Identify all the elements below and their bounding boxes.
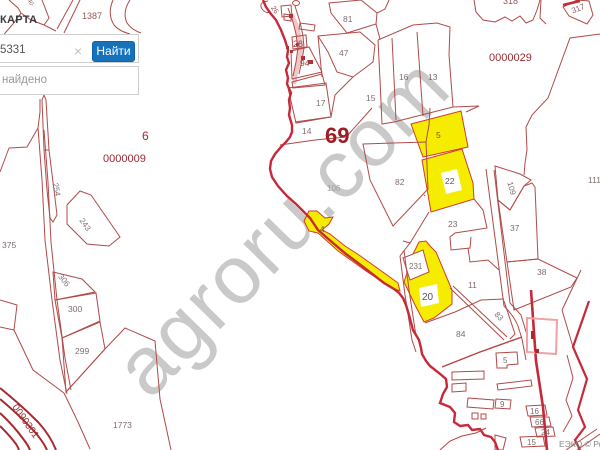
svg-text:0090301: 0090301 — [9, 402, 41, 441]
svg-text:231: 231 — [409, 262, 423, 271]
svg-text:24: 24 — [541, 428, 550, 437]
svg-text:375: 375 — [2, 240, 16, 250]
svg-text:106: 106 — [327, 184, 341, 193]
svg-text:11: 11 — [468, 280, 477, 290]
svg-text:243: 243 — [78, 217, 93, 234]
svg-text:40: 40 — [26, 0, 35, 7]
svg-text:0000009: 0000009 — [103, 153, 146, 165]
svg-text:9: 9 — [500, 400, 505, 409]
svg-text:111: 111 — [588, 175, 600, 185]
svg-text:81: 81 — [343, 14, 353, 24]
svg-text:84: 84 — [456, 329, 466, 339]
svg-text:20: 20 — [422, 292, 434, 303]
svg-text:299: 299 — [75, 346, 89, 356]
svg-text:83: 83 — [493, 310, 506, 323]
svg-text:38: 38 — [537, 267, 547, 277]
svg-text:15: 15 — [366, 93, 376, 103]
svg-text:66: 66 — [535, 418, 544, 427]
svg-text:15: 15 — [527, 438, 536, 447]
svg-text:0000029: 0000029 — [489, 52, 532, 64]
svg-text:16: 16 — [530, 407, 539, 416]
svg-text:28: 28 — [293, 39, 303, 49]
svg-text:109: 109 — [505, 181, 517, 197]
svg-text:254: 254 — [51, 182, 63, 197]
svg-text:94: 94 — [300, 58, 310, 68]
svg-text:1387: 1387 — [82, 11, 102, 21]
svg-text:5: 5 — [436, 130, 441, 140]
svg-text:306: 306 — [56, 272, 72, 288]
svg-text:1773: 1773 — [113, 420, 132, 430]
svg-text:47: 47 — [339, 48, 349, 58]
svg-text:5: 5 — [503, 356, 508, 365]
svg-text:82: 82 — [395, 177, 405, 187]
svg-text:4: 4 — [320, 225, 325, 234]
svg-text:23: 23 — [448, 219, 458, 229]
svg-text:300: 300 — [68, 304, 82, 314]
svg-text:22: 22 — [445, 176, 455, 186]
svg-text:agroru.com: agroru.com — [98, 40, 468, 414]
svg-text:69: 69 — [325, 123, 349, 148]
svg-text:37: 37 — [510, 223, 520, 233]
svg-text:16: 16 — [399, 72, 409, 82]
svg-text:6: 6 — [142, 129, 149, 143]
svg-text:17: 17 — [316, 98, 326, 108]
svg-text:14: 14 — [302, 126, 312, 136]
svg-text:318: 318 — [503, 0, 518, 6]
svg-text:13: 13 — [428, 72, 438, 82]
